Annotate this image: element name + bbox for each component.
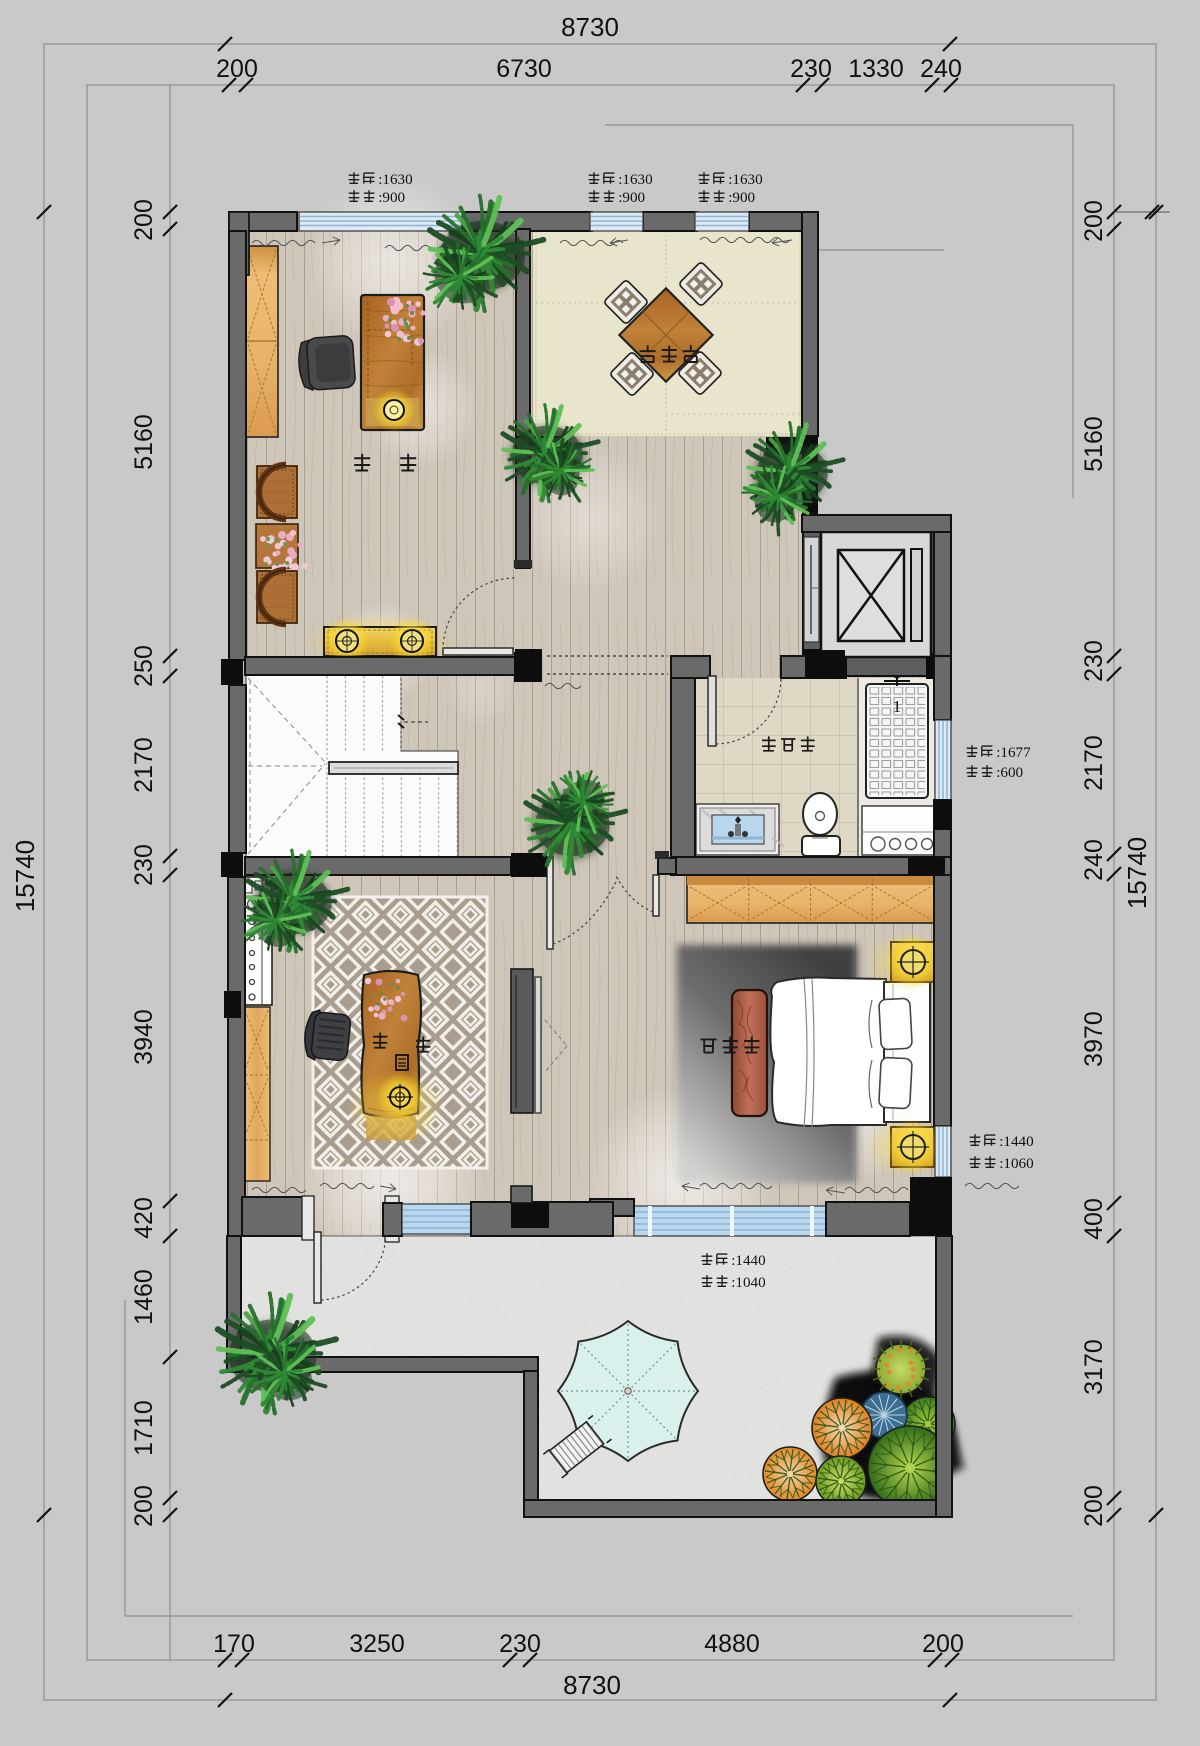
svg-text:8730: 8730 — [563, 1670, 621, 1700]
svg-text:6730: 6730 — [496, 55, 552, 83]
svg-text:3940: 3940 — [130, 1009, 158, 1065]
svg-text:240: 240 — [1080, 839, 1108, 881]
svg-text::900: :900 — [618, 190, 645, 206]
svg-text:2170: 2170 — [130, 737, 158, 793]
svg-text:3170: 3170 — [1080, 1339, 1108, 1395]
svg-text:3250: 3250 — [349, 1630, 405, 1658]
svg-text::1630: :1630 — [378, 172, 412, 188]
svg-text:200: 200 — [130, 1485, 158, 1527]
svg-text:1710: 1710 — [130, 1400, 158, 1456]
svg-text:1330: 1330 — [848, 55, 904, 83]
svg-text:1460: 1460 — [130, 1269, 158, 1325]
svg-text:15740: 15740 — [1122, 837, 1152, 909]
svg-text::1440: :1440 — [999, 1134, 1033, 1150]
svg-text::1440: :1440 — [731, 1253, 765, 1269]
svg-text:230: 230 — [790, 55, 832, 83]
svg-text::900: :900 — [378, 190, 405, 206]
svg-text::900: :900 — [728, 190, 755, 206]
svg-text:15740: 15740 — [10, 840, 40, 912]
svg-text:230: 230 — [499, 1630, 541, 1658]
svg-text::1060: :1060 — [999, 1156, 1033, 1172]
svg-text:250: 250 — [130, 645, 158, 687]
svg-text::1040: :1040 — [731, 1275, 765, 1291]
svg-text:200: 200 — [1080, 200, 1108, 242]
svg-text:5160: 5160 — [1080, 416, 1108, 472]
svg-text:420: 420 — [130, 1197, 158, 1239]
svg-text::1677: :1677 — [996, 745, 1031, 761]
svg-text:240: 240 — [920, 55, 962, 83]
svg-text:200: 200 — [130, 199, 158, 241]
svg-text:200: 200 — [1080, 1485, 1108, 1527]
svg-text:230: 230 — [1080, 640, 1108, 682]
svg-text:3970: 3970 — [1080, 1011, 1108, 1067]
svg-text:230: 230 — [130, 844, 158, 886]
svg-text:5160: 5160 — [130, 414, 158, 470]
svg-text:4880: 4880 — [704, 1630, 760, 1658]
svg-text:400: 400 — [1080, 1198, 1108, 1240]
svg-text::1630: :1630 — [728, 172, 762, 188]
svg-text::600: :600 — [996, 765, 1023, 781]
svg-text:1: 1 — [893, 697, 902, 716]
svg-text::1630: :1630 — [618, 172, 652, 188]
svg-text:2170: 2170 — [1080, 735, 1108, 791]
svg-text:8730: 8730 — [561, 12, 619, 42]
